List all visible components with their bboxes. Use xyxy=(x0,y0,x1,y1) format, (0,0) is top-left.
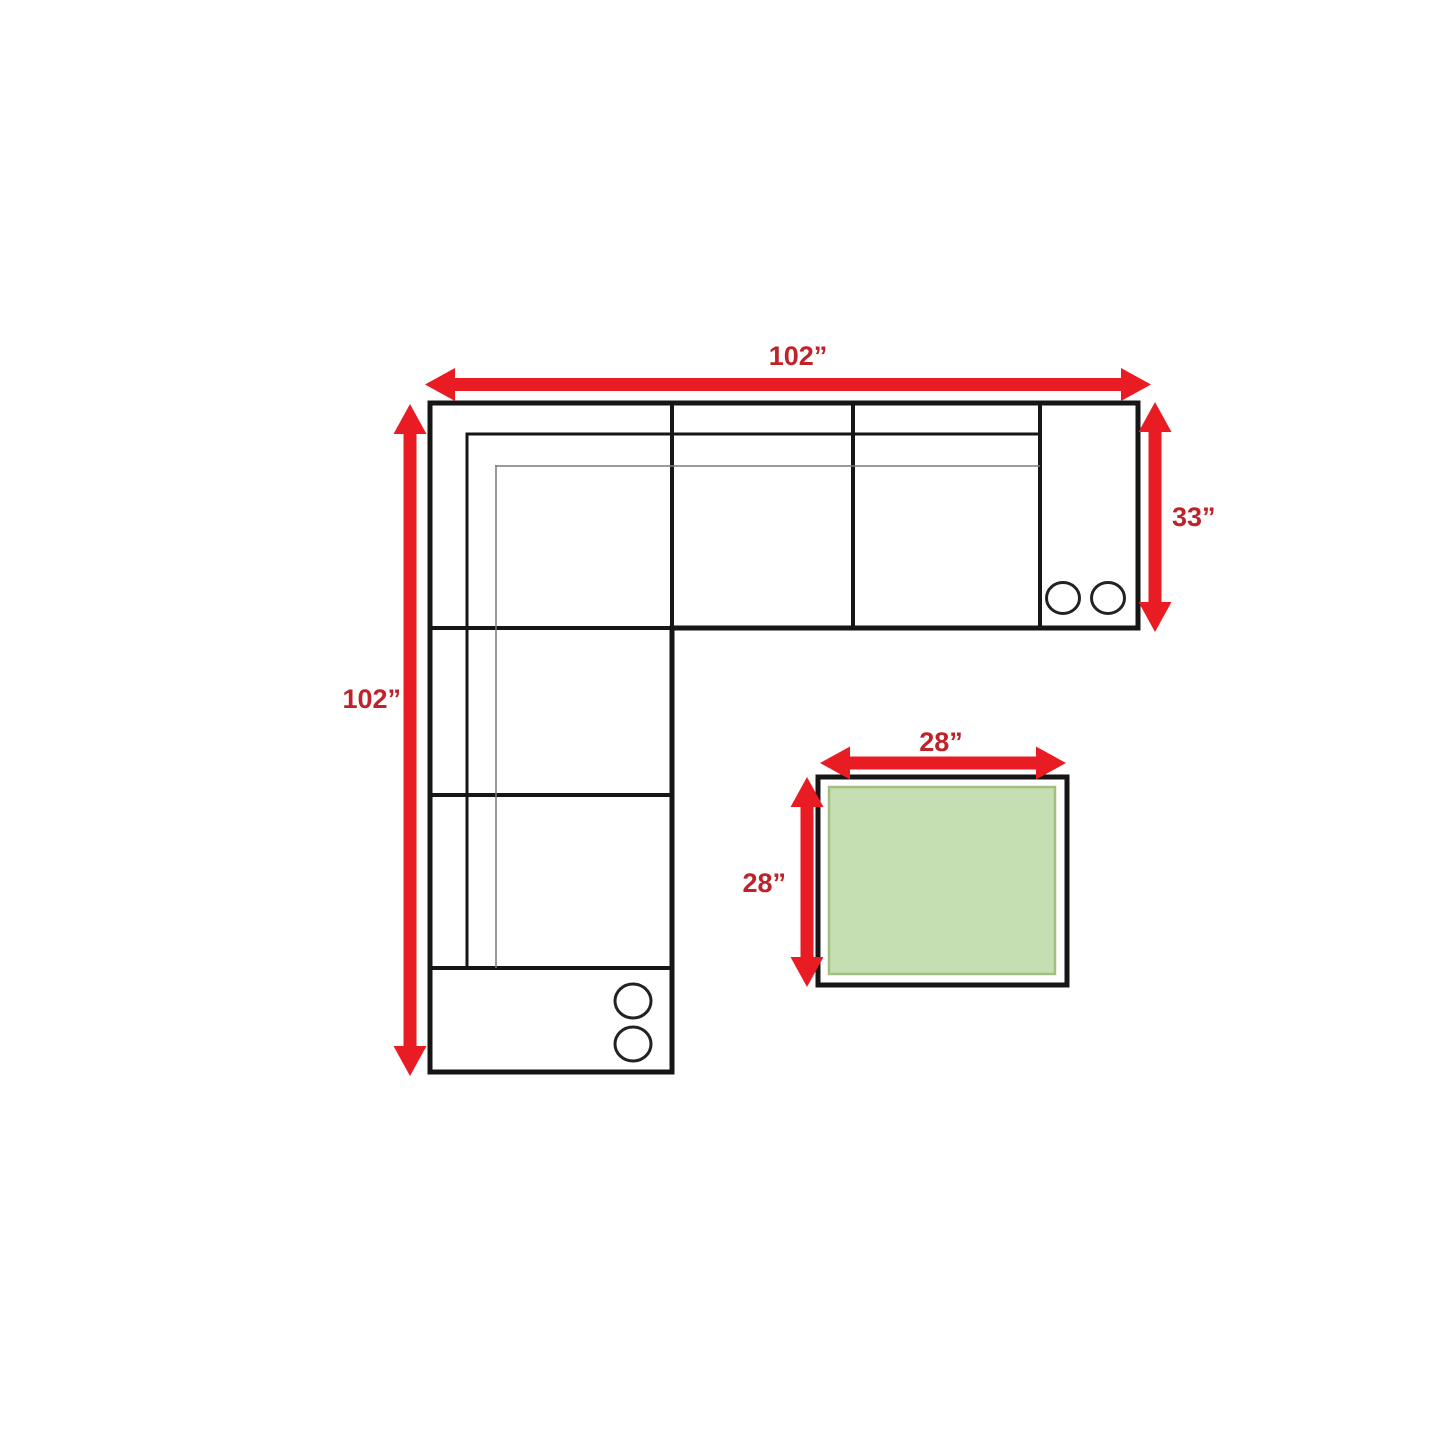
arrowhead-top-icon xyxy=(1139,402,1172,432)
label-ottoman-width: 28” xyxy=(919,727,963,757)
ottoman xyxy=(818,777,1067,985)
floor-plan-diagram: 102” 102” 33” 28” 28” xyxy=(0,0,1445,1445)
arrow-shaft xyxy=(801,803,814,961)
cupholder-top-right-2 xyxy=(1092,583,1125,614)
arrow-sofa-width xyxy=(425,368,1151,401)
arrowhead-bottom-icon xyxy=(1139,602,1172,632)
arrow-shaft xyxy=(846,757,1040,770)
label-sofa-width: 102” xyxy=(769,341,828,371)
cupholder-console-2 xyxy=(615,1027,651,1061)
arrowhead-bottom-icon xyxy=(394,1046,427,1076)
arrow-shaft xyxy=(451,378,1125,391)
arrow-shaft xyxy=(1149,428,1162,606)
ottoman-cushion xyxy=(829,787,1055,974)
arrow-sofa-depth xyxy=(394,404,427,1076)
arrowhead-left-icon xyxy=(425,368,455,401)
arrow-shaft xyxy=(404,430,417,1050)
label-sofa-depth: 102” xyxy=(342,684,401,714)
floor-plan-canvas: 102” 102” 33” 28” 28” xyxy=(0,0,1445,1445)
cupholder-console-1 xyxy=(615,984,651,1018)
arrow-section-depth xyxy=(1139,402,1172,632)
label-ottoman-depth: 28” xyxy=(742,868,786,898)
label-section-depth: 33” xyxy=(1172,502,1216,532)
arrowhead-top-icon xyxy=(394,404,427,434)
cupholder-top-right-1 xyxy=(1047,583,1080,614)
arrowhead-right-icon xyxy=(1121,368,1151,401)
